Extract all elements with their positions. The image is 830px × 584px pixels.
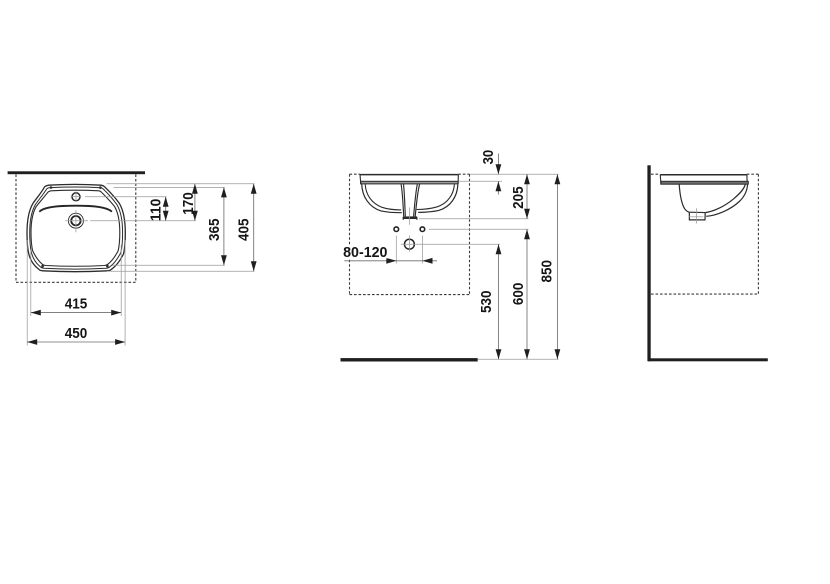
svg-text:30: 30 — [480, 150, 497, 165]
svg-text:170: 170 — [180, 192, 197, 215]
svg-text:600: 600 — [510, 283, 527, 306]
svg-text:850: 850 — [539, 260, 556, 283]
svg-text:450: 450 — [65, 325, 88, 342]
svg-text:205: 205 — [510, 186, 527, 209]
svg-text:415: 415 — [65, 295, 88, 312]
svg-text:530: 530 — [478, 291, 495, 314]
svg-text:365: 365 — [206, 218, 223, 241]
svg-text:80-120: 80-120 — [343, 244, 387, 261]
svg-text:405: 405 — [236, 218, 253, 241]
svg-text:110: 110 — [147, 199, 164, 222]
